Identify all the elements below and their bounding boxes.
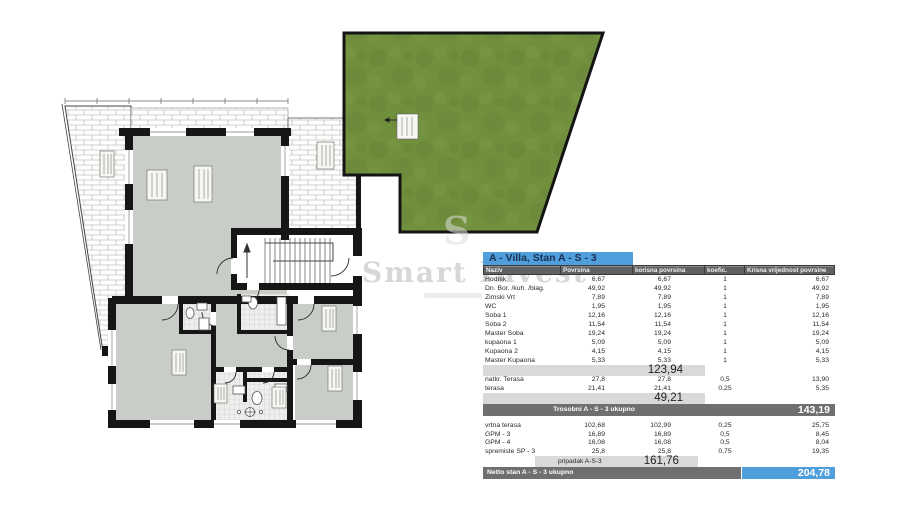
total-netto-bar: Netto stan A - S - 3 ukupno 204,78: [483, 467, 835, 479]
row-value: 0,25: [705, 422, 745, 431]
table-row: GPM - 416,0816,080,58,04: [483, 439, 835, 448]
row-value: 7,89: [745, 293, 835, 302]
row-label: Soba 2: [483, 320, 561, 329]
row-label: Hodnik: [483, 275, 561, 284]
page: S Smart Invest® A - Villa, Stan A - S - …: [0, 0, 919, 517]
total-trosobni-value: 143,19: [705, 404, 835, 416]
garden-area: [344, 33, 603, 232]
row-value: 1,95: [561, 302, 633, 311]
table-row: GPM - 316,8916,890,58,45: [483, 431, 835, 440]
row-value: 27,8: [561, 376, 633, 385]
row-value: 1,95: [633, 302, 705, 311]
row-value: 0,5: [705, 376, 745, 385]
row-label: GPM - 4: [483, 439, 561, 448]
row-value: 7,89: [561, 293, 633, 302]
table-row: Soba 211,5411,54111,54: [483, 320, 835, 329]
row-value: 25,8: [561, 448, 633, 457]
row-value: 19,24: [633, 329, 705, 338]
row-value: 12,16: [633, 311, 705, 320]
row-value: 4,15: [633, 347, 705, 356]
row-value: 49,92: [561, 284, 633, 293]
table-row: WC1,951,9511,95: [483, 302, 835, 311]
watermark-letter: S: [443, 208, 470, 253]
row-value: 1: [705, 302, 745, 311]
row-value: 11,54: [561, 320, 633, 329]
row-label: terasa: [483, 385, 561, 394]
table-row: Master Soba19,2419,24119,24: [483, 329, 835, 338]
row-value: 5,35: [745, 385, 835, 394]
row-value: 5,09: [561, 338, 633, 347]
total-trosobni-bar: Trosobni A - S - 3 ukupno 143,19: [483, 404, 835, 416]
row-value: 6,67: [561, 275, 633, 284]
terrace-rows: natkr. Terasa27,827,80,513,90terasa21,41…: [483, 376, 835, 393]
row-value: 1,95: [745, 302, 835, 311]
row-value: 25,75: [745, 422, 835, 431]
row-label: Master Soba: [483, 329, 561, 338]
table-row: Kupaona 24,154,1514,15: [483, 347, 835, 356]
subtotal-terraces: 49,21: [483, 393, 705, 404]
row-value: 27,8: [633, 376, 705, 385]
row-value: 0,75: [705, 448, 745, 457]
table-row: natkr. Terasa27,827,80,513,90: [483, 376, 835, 385]
row-value: 1: [705, 320, 745, 329]
table-header-row: NazivPovrsinakorisna povrsinakoefic.Kris…: [483, 265, 835, 275]
row-value: 19,24: [745, 329, 835, 338]
row-value: 6,67: [633, 275, 705, 284]
row-label: vrtna terasa: [483, 422, 561, 431]
total-trosobni-label: Trosobni A - S - 3 ukupno: [483, 404, 705, 416]
row-value: 0,5: [705, 431, 745, 440]
row-value: 1: [705, 284, 745, 293]
row-label: Kupaona 2: [483, 347, 561, 356]
row-value: 4,15: [745, 347, 835, 356]
row-value: 6,67: [745, 275, 835, 284]
row-value: 7,89: [633, 293, 705, 302]
row-label: Master Kupaona: [483, 356, 561, 365]
row-value: 12,16: [745, 311, 835, 320]
row-value: 1: [705, 338, 745, 347]
row-value: 0,5: [705, 439, 745, 448]
row-value: 1: [705, 275, 745, 284]
row-value: 19,24: [561, 329, 633, 338]
subtotal-extras-label: pripadak A-S-3: [535, 456, 625, 467]
row-label: WC: [483, 302, 561, 311]
row-value: 1: [705, 329, 745, 338]
row-value: 0,25: [705, 385, 745, 394]
row-value: 5,09: [633, 338, 705, 347]
row-value: 8,04: [745, 439, 835, 448]
row-value: 5,33: [745, 356, 835, 365]
table-title: A - Villa, Stan A - S - 3: [483, 252, 633, 265]
row-value: 5,09: [745, 338, 835, 347]
row-value: 8,45: [745, 431, 835, 440]
row-value: 5,33: [561, 356, 633, 365]
row-value: 12,16: [561, 311, 633, 320]
row-label: Soba 1: [483, 311, 561, 320]
row-label: Zimski Vrt: [483, 293, 561, 302]
column-header: koefic.: [705, 265, 745, 275]
watermark-subtitle: [424, 293, 482, 298]
column-header: korisna povrsina: [633, 265, 705, 275]
row-label: spremiste SP - 3: [483, 448, 561, 457]
stairwell: [237, 235, 351, 285]
row-label: natkr. Terasa: [483, 376, 561, 385]
table-row: Hodnik6,676,6716,67: [483, 275, 835, 284]
row-value: 16,89: [633, 431, 705, 440]
row-label: GPM - 3: [483, 431, 561, 440]
total-netto-label: Netto stan A - S - 3 ukupno: [483, 467, 741, 479]
row-value: 21,41: [561, 385, 633, 394]
rooms-rows: Hodnik6,676,6716,67Dn. Bor. /kuh. /blag.…: [483, 275, 835, 365]
column-header: Naziv: [483, 265, 561, 275]
row-value: 1: [705, 311, 745, 320]
dimension-ruler: [65, 98, 288, 104]
column-header: Povrsina: [561, 265, 633, 275]
total-netto-value: 204,78: [741, 467, 835, 479]
row-value: 11,54: [633, 320, 705, 329]
table-row: vrtna terasa102,68102,990,2525,75: [483, 422, 835, 431]
row-label: kupaona 1: [483, 338, 561, 347]
row-value: 11,54: [745, 320, 835, 329]
row-value: 16,08: [633, 439, 705, 448]
row-value: 13,90: [745, 376, 835, 385]
row-value: 16,08: [561, 439, 633, 448]
row-value: 1: [705, 347, 745, 356]
extras-rows: vrtna terasa102,68102,990,2525,75GPM - 3…: [483, 422, 835, 456]
row-value: 102,99: [633, 422, 705, 431]
table-row: kupaona 15,095,0915,09: [483, 338, 835, 347]
row-value: 1: [705, 356, 745, 365]
table-row: Zimski Vrt7,897,8917,89: [483, 293, 835, 302]
row-value: 49,92: [745, 284, 835, 293]
subtotal-rooms: 123,94: [483, 365, 705, 376]
table-row: Soba 112,1612,16112,16: [483, 311, 835, 320]
row-value: 1: [705, 293, 745, 302]
areas-table: A - Villa, Stan A - S - 3 NazivPovrsinak…: [483, 252, 835, 479]
subtotal-extras: pripadak A-S-3 161,76: [535, 456, 698, 467]
row-value: 49,92: [633, 284, 705, 293]
row-label: Dn. Bor. /kuh. /blag.: [483, 284, 561, 293]
subtotal-extras-value: 161,76: [625, 456, 698, 467]
terrace-top-strip: [131, 108, 288, 130]
row-value: 16,89: [561, 431, 633, 440]
row-value: 19,35: [745, 448, 835, 457]
row-value: 102,68: [561, 422, 633, 431]
table-row: Dn. Bor. /kuh. /blag.49,9249,92149,92: [483, 284, 835, 293]
row-value: 4,15: [561, 347, 633, 356]
column-header: Krisna vrijednost povrsine: [745, 265, 835, 275]
